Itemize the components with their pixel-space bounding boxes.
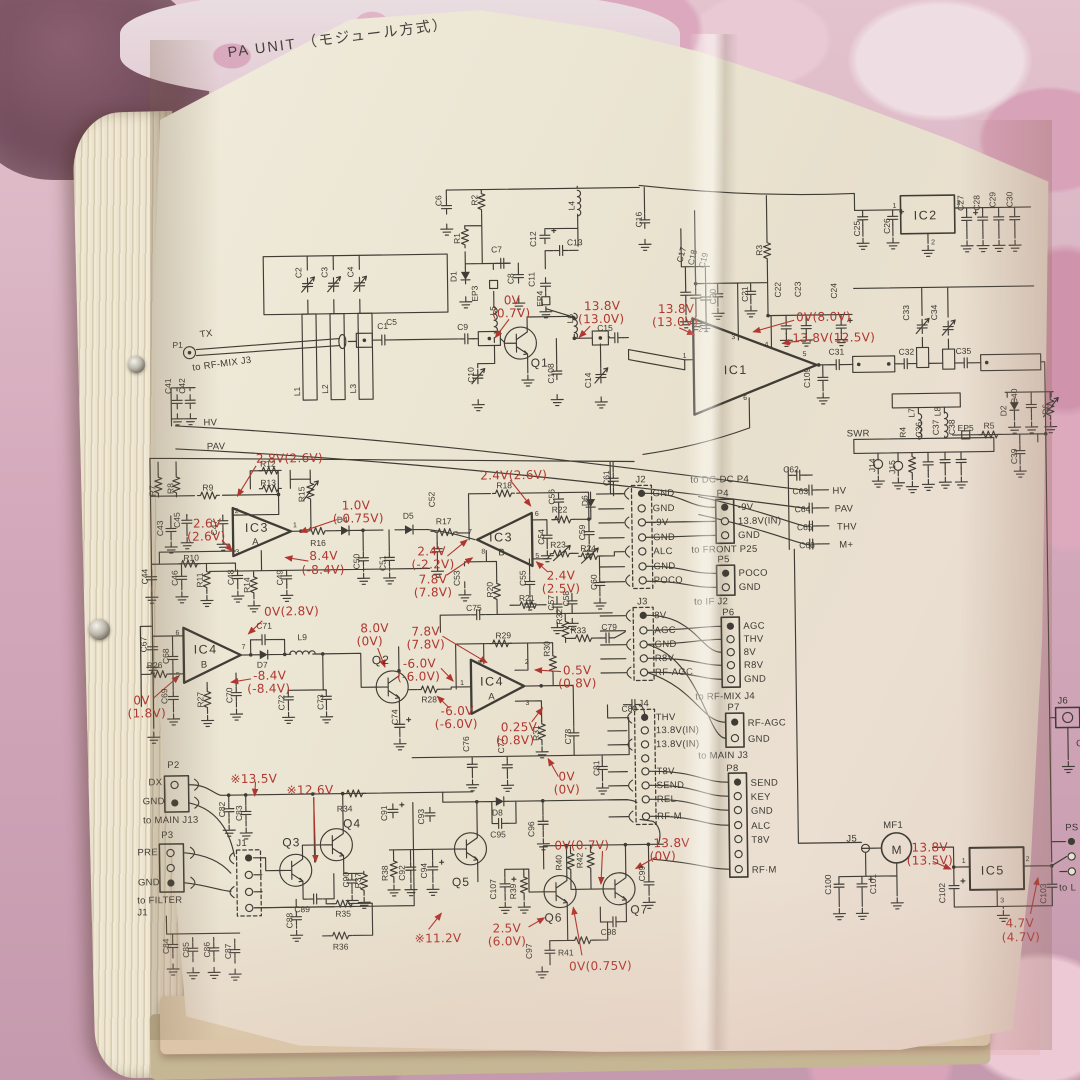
ref-q5: Q5 [452, 875, 470, 889]
j2-pin: GND [653, 561, 675, 572]
ref-r16: R16 [310, 538, 326, 548]
ic4b-pin7: 7 [242, 644, 246, 651]
ref-c5: C5 [386, 317, 397, 327]
transistors [272, 326, 635, 912]
ref-r36: R36 [333, 942, 349, 952]
ref-ep4: EP4 [535, 290, 545, 306]
ref-d8: D8 [492, 807, 503, 817]
ref-c35: C35 [955, 346, 971, 356]
voltage-annotation: ※12.6V [287, 783, 334, 798]
ref-m: M [891, 843, 902, 857]
ref-c81: C81 [591, 760, 601, 776]
voltage-annotation: (2.6V) [187, 529, 226, 544]
ref-c87: C87 [223, 943, 233, 959]
ref-l8: L8 [932, 406, 942, 416]
ref-c103: C103 [1038, 883, 1048, 904]
ref-ic1: IC1 [724, 363, 748, 377]
ref-ic3a: IC3 [245, 521, 269, 535]
voltage-annotation: (0V) [554, 782, 581, 796]
bus-hv-left: HV [203, 417, 217, 428]
voltage-annotation: (0V) [649, 849, 676, 863]
ref-c40: C40 [1009, 388, 1019, 404]
conn-j2: J2 [635, 474, 646, 485]
ref-c16: C16 [634, 211, 644, 227]
ref-c37: C37 [931, 419, 941, 435]
ref-c32: C32 [898, 347, 914, 357]
voltage-annotation: 8.4V [309, 549, 338, 563]
p8-pin: T8V [751, 835, 770, 846]
q1-transistor [504, 327, 536, 359]
ref-q7: Q7 [630, 902, 648, 916]
ref-r27: R27 [195, 692, 205, 708]
page-title: PA UNIT （モジュール方式） [227, 16, 450, 61]
ref-c45: C45 [172, 512, 182, 528]
ref-c28: C28 [971, 195, 981, 211]
conn-p2: P2 [167, 760, 179, 771]
j2-pin: GND [653, 503, 675, 514]
bus-pav-left: PAV [207, 441, 226, 452]
ic4a-pin8: 8 [478, 660, 482, 667]
ref-c74: C74 [390, 709, 400, 725]
ref-c69: C69 [159, 688, 169, 704]
ref-c46: C46 [170, 570, 180, 586]
ref-c84: C84 [161, 938, 171, 954]
voltage-annotation: (-6.0V) [397, 669, 440, 684]
ref-r7: R7 [147, 485, 157, 496]
ic4b-pin5: 5 [176, 672, 180, 679]
j4-pin: 13.8V(IN) [656, 725, 700, 737]
ref-r39: R39 [508, 883, 518, 899]
ref-r9: R9 [202, 482, 213, 492]
ref-c22: C22 [773, 282, 783, 298]
ref-c57: C57 [546, 595, 556, 611]
ref-c89: C89 [294, 904, 310, 914]
ref-c21: C21 [740, 286, 750, 302]
p8-pin: KEY [751, 792, 771, 803]
ref-q4: Q4 [343, 816, 361, 830]
ref-ic5: IC5 [981, 863, 1005, 877]
ref-ep3: EP3 [470, 285, 480, 301]
ref-r41: R41 [558, 947, 574, 957]
ic3a-pin3: 3 [235, 549, 239, 556]
bus-mplus-right: M+ [839, 539, 853, 550]
ic3b-pin7: 7 [468, 529, 472, 536]
j4-pin: T8V [656, 766, 675, 777]
ic4a-pin2: 2 [525, 659, 529, 666]
ref-r4: R4 [898, 427, 908, 438]
j3-pin: AGC [654, 625, 676, 636]
p4-pin: -9V [738, 502, 754, 513]
j2-pin: -9V [653, 517, 669, 528]
ic5-pin3: 3 [1000, 897, 1004, 904]
ref-c38: C38 [947, 419, 957, 435]
q6-transistor [544, 875, 576, 907]
ref-d1: D1 [448, 271, 458, 282]
ref-r29: R29 [495, 630, 511, 640]
ref-j14: J14 [867, 458, 877, 472]
ref-c8: C8 [505, 273, 515, 284]
ic1-pin3: 3 [731, 334, 735, 341]
ic1-pin5: 5 [803, 351, 807, 358]
conn-ps: PS [1065, 822, 1078, 833]
ref-p1: P1 [172, 340, 183, 350]
ref-r24: R24 [580, 543, 596, 553]
ref-c24: C24 [829, 283, 839, 299]
voltage-annotation: 2.8V(2.6V) [256, 451, 323, 466]
p6-pin: GND [744, 674, 766, 685]
j2-pin: POCO [654, 575, 683, 586]
p6-pin: R8V [744, 660, 764, 671]
ref-r3: R3 [754, 245, 764, 256]
ref-c50: C50 [351, 553, 361, 569]
ref-d6: D6 [580, 495, 590, 506]
ref-c83: C83 [234, 805, 244, 821]
j3-pin: RF-AGC [655, 667, 693, 679]
ic1-pin2: 2 [698, 327, 702, 334]
ic2-pin1: 1 [892, 203, 896, 210]
p6-pin: THV [743, 634, 763, 645]
conn-p3: P3 [161, 830, 173, 841]
voltage-annotation: (-6.0V) [435, 717, 478, 732]
ref-c93: C93 [416, 809, 426, 825]
photo-of-service-manual: PA UNIT （モジュール方式） P1 TX to RF-MIX J3 C1 … [0, 0, 1080, 1080]
ref-c102: C102 [937, 883, 947, 904]
ref-c23: C23 [793, 281, 803, 297]
conn-p5: P5 [717, 554, 729, 565]
ref-c54: C54 [536, 529, 546, 545]
ref-r38: R38 [380, 865, 390, 881]
ref-r2: R2 [469, 195, 479, 206]
net-swr: SWR [847, 428, 870, 439]
ref-d5: D5 [403, 511, 414, 521]
ref-c63: C63 [792, 486, 808, 496]
ref-c20: C20 [708, 288, 718, 304]
ref-c107: C107 [488, 879, 498, 900]
ref-c61: C61 [601, 470, 611, 486]
ref-c43: C43 [155, 520, 165, 536]
ref-r20: R20 [485, 582, 495, 598]
ref-c101: C101 [868, 874, 878, 895]
ref-ic4b-suffix: B [201, 659, 208, 670]
ref-r14: R14 [242, 577, 252, 593]
p6-pin: AGC [743, 621, 765, 632]
ref-c62: C62 [783, 464, 799, 474]
conn-j6: J6 [1057, 695, 1068, 706]
j2-pin: GND [653, 532, 675, 543]
ref-r40: R40 [554, 855, 564, 871]
p8-pin: ALC [751, 821, 771, 832]
j4-pin: REL [657, 794, 677, 805]
ref-c90: C90 [341, 872, 351, 888]
ref-l2: L2 [320, 384, 330, 394]
voltage-annotation: 13.8V(12.5V) [792, 330, 875, 345]
ref-c79: C79 [601, 622, 617, 632]
q7-transistor [603, 873, 635, 905]
p2-pin-gnd: GND [143, 796, 165, 807]
ref-c26: C26 [882, 218, 892, 234]
voltage-annotation: (13.0V) [652, 315, 699, 330]
voltage-annotation: (-8.4V) [301, 563, 344, 578]
ref-ic3b-suffix: B [498, 547, 505, 558]
voltage-annotation: 2.4V(2.6V) [480, 468, 547, 483]
j4-pin: RF·M [657, 811, 682, 822]
ref-c36: C36 [914, 422, 924, 438]
ic3b-pin8: 8 [481, 549, 485, 556]
voltage-annotation: (6.0V) [488, 934, 527, 949]
ref-r6: R6 [1040, 404, 1050, 415]
ref-c42: C42 [177, 378, 187, 394]
ref-r42: R42 [575, 852, 585, 868]
ref-r11: R11 [195, 572, 205, 587]
conn-p8: P8 [726, 763, 738, 774]
ref-c9: C9 [457, 322, 468, 332]
j4-pin: THV [656, 712, 676, 723]
ref-mf1: MF1 [883, 820, 903, 831]
ref-r5: R5 [984, 420, 995, 430]
ref-r10: R10 [183, 553, 199, 563]
ref-c12: C12 [528, 231, 538, 247]
q5-transistor [454, 833, 486, 865]
ref-c48: C48 [226, 569, 236, 585]
bus-pav-right: PAV [835, 503, 854, 514]
j4-pin: 13.8V(IN) [656, 739, 700, 751]
ref-ic4a-suffix: A [488, 691, 495, 702]
p8-pin: GND [751, 806, 773, 817]
ic5-pin1: 1 [962, 858, 966, 865]
ref-c2: C2 [293, 267, 303, 278]
ref-r21: R21 [519, 593, 535, 603]
bus-thv-right: THV [837, 521, 857, 532]
route-if: to IF J2 [694, 596, 728, 607]
j2-pin: GND [652, 488, 674, 499]
ref-r1: R1 [452, 233, 462, 244]
j6-gnd: GND [1076, 738, 1080, 749]
voltage-annotation: 0V(2.8V) [264, 604, 319, 619]
ref-c100: C100 [823, 874, 833, 895]
ref-c64: C64 [795, 504, 811, 514]
voltage-annotation: (0.7V) [492, 306, 531, 321]
ic1-pin4: 4 [764, 342, 768, 349]
p3-pin-pre: PRE [137, 847, 158, 858]
route-main-j3: to MAIN J3 [698, 750, 748, 762]
ref-r28: R28 [421, 694, 437, 704]
ref-c86: C86 [202, 942, 212, 958]
voltage-annotation: ※13.5V [230, 772, 277, 787]
ref-c73: C73 [315, 694, 325, 710]
conn-j5: J5 [846, 833, 857, 844]
voltage-annotation: (13.0V) [578, 312, 625, 327]
ref-l4: L4 [566, 201, 576, 211]
q4-transistor [320, 828, 352, 860]
p3-pin-gnd: GND [138, 877, 160, 888]
ref-c70: C70 [224, 687, 234, 703]
ref-r8: R8 [165, 483, 175, 494]
ref-r22: R22 [552, 504, 568, 514]
ref-r34: R34 [337, 803, 353, 813]
conn-p6: P6 [722, 607, 734, 618]
voltage-annotation: (7.8V) [414, 585, 453, 600]
conn-p4: P4 [716, 488, 728, 499]
ref-q6: Q6 [544, 911, 562, 925]
p2-pin-dx: DX [148, 777, 162, 788]
ref-c66: C66 [799, 540, 815, 550]
route-rfmix-j4: to RF-MIX J4 [695, 691, 755, 703]
route-dcdc: to DC-DC P4 [690, 474, 749, 486]
voltage-annotation: 0V(0.7V) [554, 838, 609, 853]
voltage-annotation: (1.8V) [127, 706, 166, 721]
ref-c95: C95 [490, 829, 506, 839]
voltage-annotation: (0.8V) [496, 733, 535, 748]
ref-l7: L7 [906, 408, 916, 418]
q3-transistor [280, 854, 312, 886]
ref-c88: C88 [284, 912, 294, 928]
ref-c33: C33 [901, 305, 911, 321]
ref-c94: C94 [419, 863, 429, 879]
ic4a-pin1: 1 [460, 680, 464, 687]
ref-c51: C51 [377, 555, 387, 571]
voltage-annotation: (-8.4V) [247, 681, 290, 696]
p8-pin: SEND [750, 778, 778, 789]
ref-r17: R17 [436, 516, 452, 526]
ref-r32: R32 [554, 609, 564, 625]
voltage-annotation: (-0.75V) [333, 511, 384, 526]
ref-c53: C53 [452, 570, 462, 586]
ic3a-pin2: 2 [235, 508, 239, 515]
p7-pin: RF-AGC [748, 717, 786, 729]
ref-c49: C49 [275, 570, 285, 586]
p4-pin: GND [738, 530, 760, 541]
ref-c11: C11 [526, 272, 536, 287]
ref-ic2: IC2 [914, 208, 938, 222]
ref-c67: C67 [138, 636, 148, 652]
p7-pin: GND [748, 734, 770, 745]
conn-j1: J1 [236, 838, 247, 849]
ref-c65: C65 [797, 522, 813, 532]
ref-d2: D2 [998, 405, 1008, 416]
ref-c10: C10 [466, 367, 476, 383]
voltage-annotation: (2.5V) [542, 581, 581, 596]
ref-c108: C108 [546, 363, 556, 384]
j4-pin: SEND [657, 780, 685, 791]
ref-r33: R33 [570, 625, 586, 635]
voltage-annotation: 4.7V [1005, 916, 1034, 930]
ref-ic4b: IC4 [194, 642, 218, 656]
ref-r13: R13 [260, 478, 276, 488]
ref-c71: C71 [256, 621, 272, 631]
ic4b-pin6: 6 [175, 630, 179, 637]
ref-l6: L6 [565, 314, 575, 324]
voltage-annotation: (4.7V) [1002, 930, 1041, 945]
ref-c96: C96 [526, 821, 536, 837]
route-filter-j1: J1 [137, 907, 148, 918]
conn-j4: J4 [638, 698, 649, 709]
ref-r15: R15 [296, 486, 306, 502]
ref-c3: C3 [319, 267, 329, 278]
route-filter: to FILTER [137, 895, 182, 907]
ref-r37: R37 [353, 872, 363, 888]
ref-c72: C72 [276, 695, 286, 711]
p5-pin: POCO [739, 568, 768, 579]
conn-j3: J3 [637, 596, 648, 607]
ref-c56: C56 [546, 489, 556, 505]
route-to-l: to L [1059, 882, 1076, 893]
ref-c25: C25 [852, 220, 862, 236]
ref-c85: C85 [181, 942, 191, 958]
ref-q3: Q3 [282, 835, 300, 849]
ic4a-pin3: 3 [525, 700, 529, 707]
ref-c41: C41 [163, 378, 173, 394]
ref-c80: C80 [621, 703, 637, 713]
ref-r30: R30 [542, 641, 552, 657]
ic3b-pin6: 6 [535, 511, 539, 518]
ref-c14: C14 [583, 372, 593, 388]
p8-pin: RF·M [752, 865, 777, 876]
ref-c6: C6 [433, 195, 443, 206]
ic3a-pin1: 1 [293, 522, 297, 529]
ref-c29: C29 [987, 192, 997, 208]
ref-c109: C109 [802, 367, 812, 388]
voltage-annotation: (7.8V) [407, 637, 446, 652]
ic2-pin3: 3 [956, 200, 960, 207]
ref-r23: R23 [550, 539, 566, 549]
route-rfmix-j3: to RF-MIX J3 [192, 355, 253, 374]
labels: PA UNIT （モジュール方式） P1 TX to RF-MIX J3 C1 … [125, 7, 1080, 964]
ref-c13: C13 [567, 237, 583, 247]
ref-c78: C78 [563, 729, 573, 745]
ref-c34: C34 [929, 304, 939, 320]
ref-r26: R26 [147, 660, 163, 670]
ref-r35: R35 [335, 909, 351, 919]
pa-unit-schematic: PA UNIT （モジュール方式） P1 TX to RF-MIX J3 C1 … [0, 0, 1080, 1080]
net-tx: TX [199, 328, 213, 341]
ref-ic3b: IC3 [489, 530, 513, 544]
j3-pin: 8V [654, 610, 667, 621]
j3-pin: R8V [655, 653, 675, 664]
route-main-j13: to MAIN J13 [143, 815, 199, 827]
voltage-annotation: (0.8V) [558, 676, 597, 691]
voltage-annotation: (0V) [356, 634, 383, 648]
ref-c75: C75 [466, 603, 482, 613]
bus-hv-right: HV [832, 486, 846, 497]
p5-pin: GND [739, 582, 761, 593]
ref-ic4a: IC4 [480, 674, 504, 688]
ref-c55: C55 [518, 570, 528, 586]
ref-c7: C7 [491, 244, 502, 254]
ref-j15: J15 [887, 460, 897, 474]
ic3b-pin5: 5 [535, 553, 539, 560]
ref-c44: C44 [140, 568, 150, 584]
ic2-pin2: 2 [931, 239, 935, 246]
ref-c82: C82 [217, 801, 227, 817]
ic1-pin6: 6 [743, 395, 747, 402]
p4-pin: 13.8V(IN) [738, 515, 782, 527]
j2-pin: ALC [653, 546, 673, 557]
ref-c31: C31 [828, 347, 844, 357]
ref-q2: Q2 [372, 653, 390, 667]
voltage-annotation: (-2.2V) [411, 557, 454, 572]
ref-ic3a-suffix: A [252, 537, 259, 548]
ref-c52: C52 [426, 491, 436, 507]
ic5-pin2: 2 [1026, 856, 1030, 863]
p6-pin: 8V [744, 647, 757, 658]
ref-c30: C30 [1004, 191, 1014, 207]
ref-c76: C76 [461, 736, 471, 752]
ref-l9: L9 [297, 632, 307, 642]
ref-c91: C91 [379, 805, 389, 821]
ref-c92: C92 [397, 865, 407, 881]
j3-pin: GND [655, 639, 677, 650]
ref-l1: L1 [292, 386, 302, 396]
